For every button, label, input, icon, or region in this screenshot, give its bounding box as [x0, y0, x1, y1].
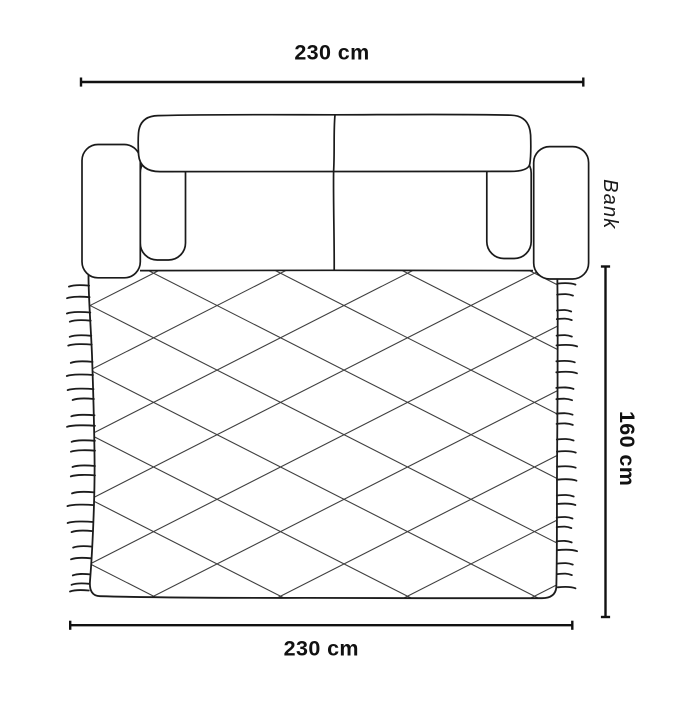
svg-text:230 cm: 230 cm — [284, 637, 359, 661]
svg-text:Bank: Bank — [599, 179, 621, 229]
svg-text:230 cm: 230 cm — [294, 40, 369, 64]
svg-text:160 cm: 160 cm — [615, 411, 639, 486]
